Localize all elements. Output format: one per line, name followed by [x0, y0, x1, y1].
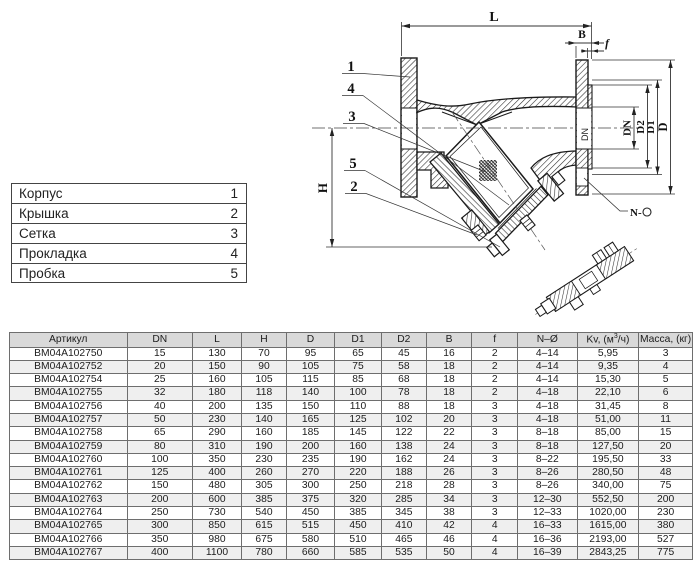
svg-text:L: L [489, 10, 498, 25]
svg-text:4: 4 [347, 81, 354, 97]
svg-text:N-: N- [630, 207, 642, 219]
svg-text:D2: D2 [635, 120, 647, 134]
svg-text:1: 1 [347, 59, 354, 75]
svg-text:2: 2 [350, 179, 357, 195]
svg-text:f: f [605, 38, 610, 50]
svg-text:5: 5 [349, 156, 356, 172]
svg-text:H: H [315, 183, 330, 193]
svg-text:D: D [656, 122, 670, 131]
svg-text:DN: DN [580, 128, 590, 141]
svg-text:3: 3 [348, 109, 355, 125]
svg-text:B: B [578, 29, 586, 41]
svg-text:DN: DN [622, 120, 634, 136]
